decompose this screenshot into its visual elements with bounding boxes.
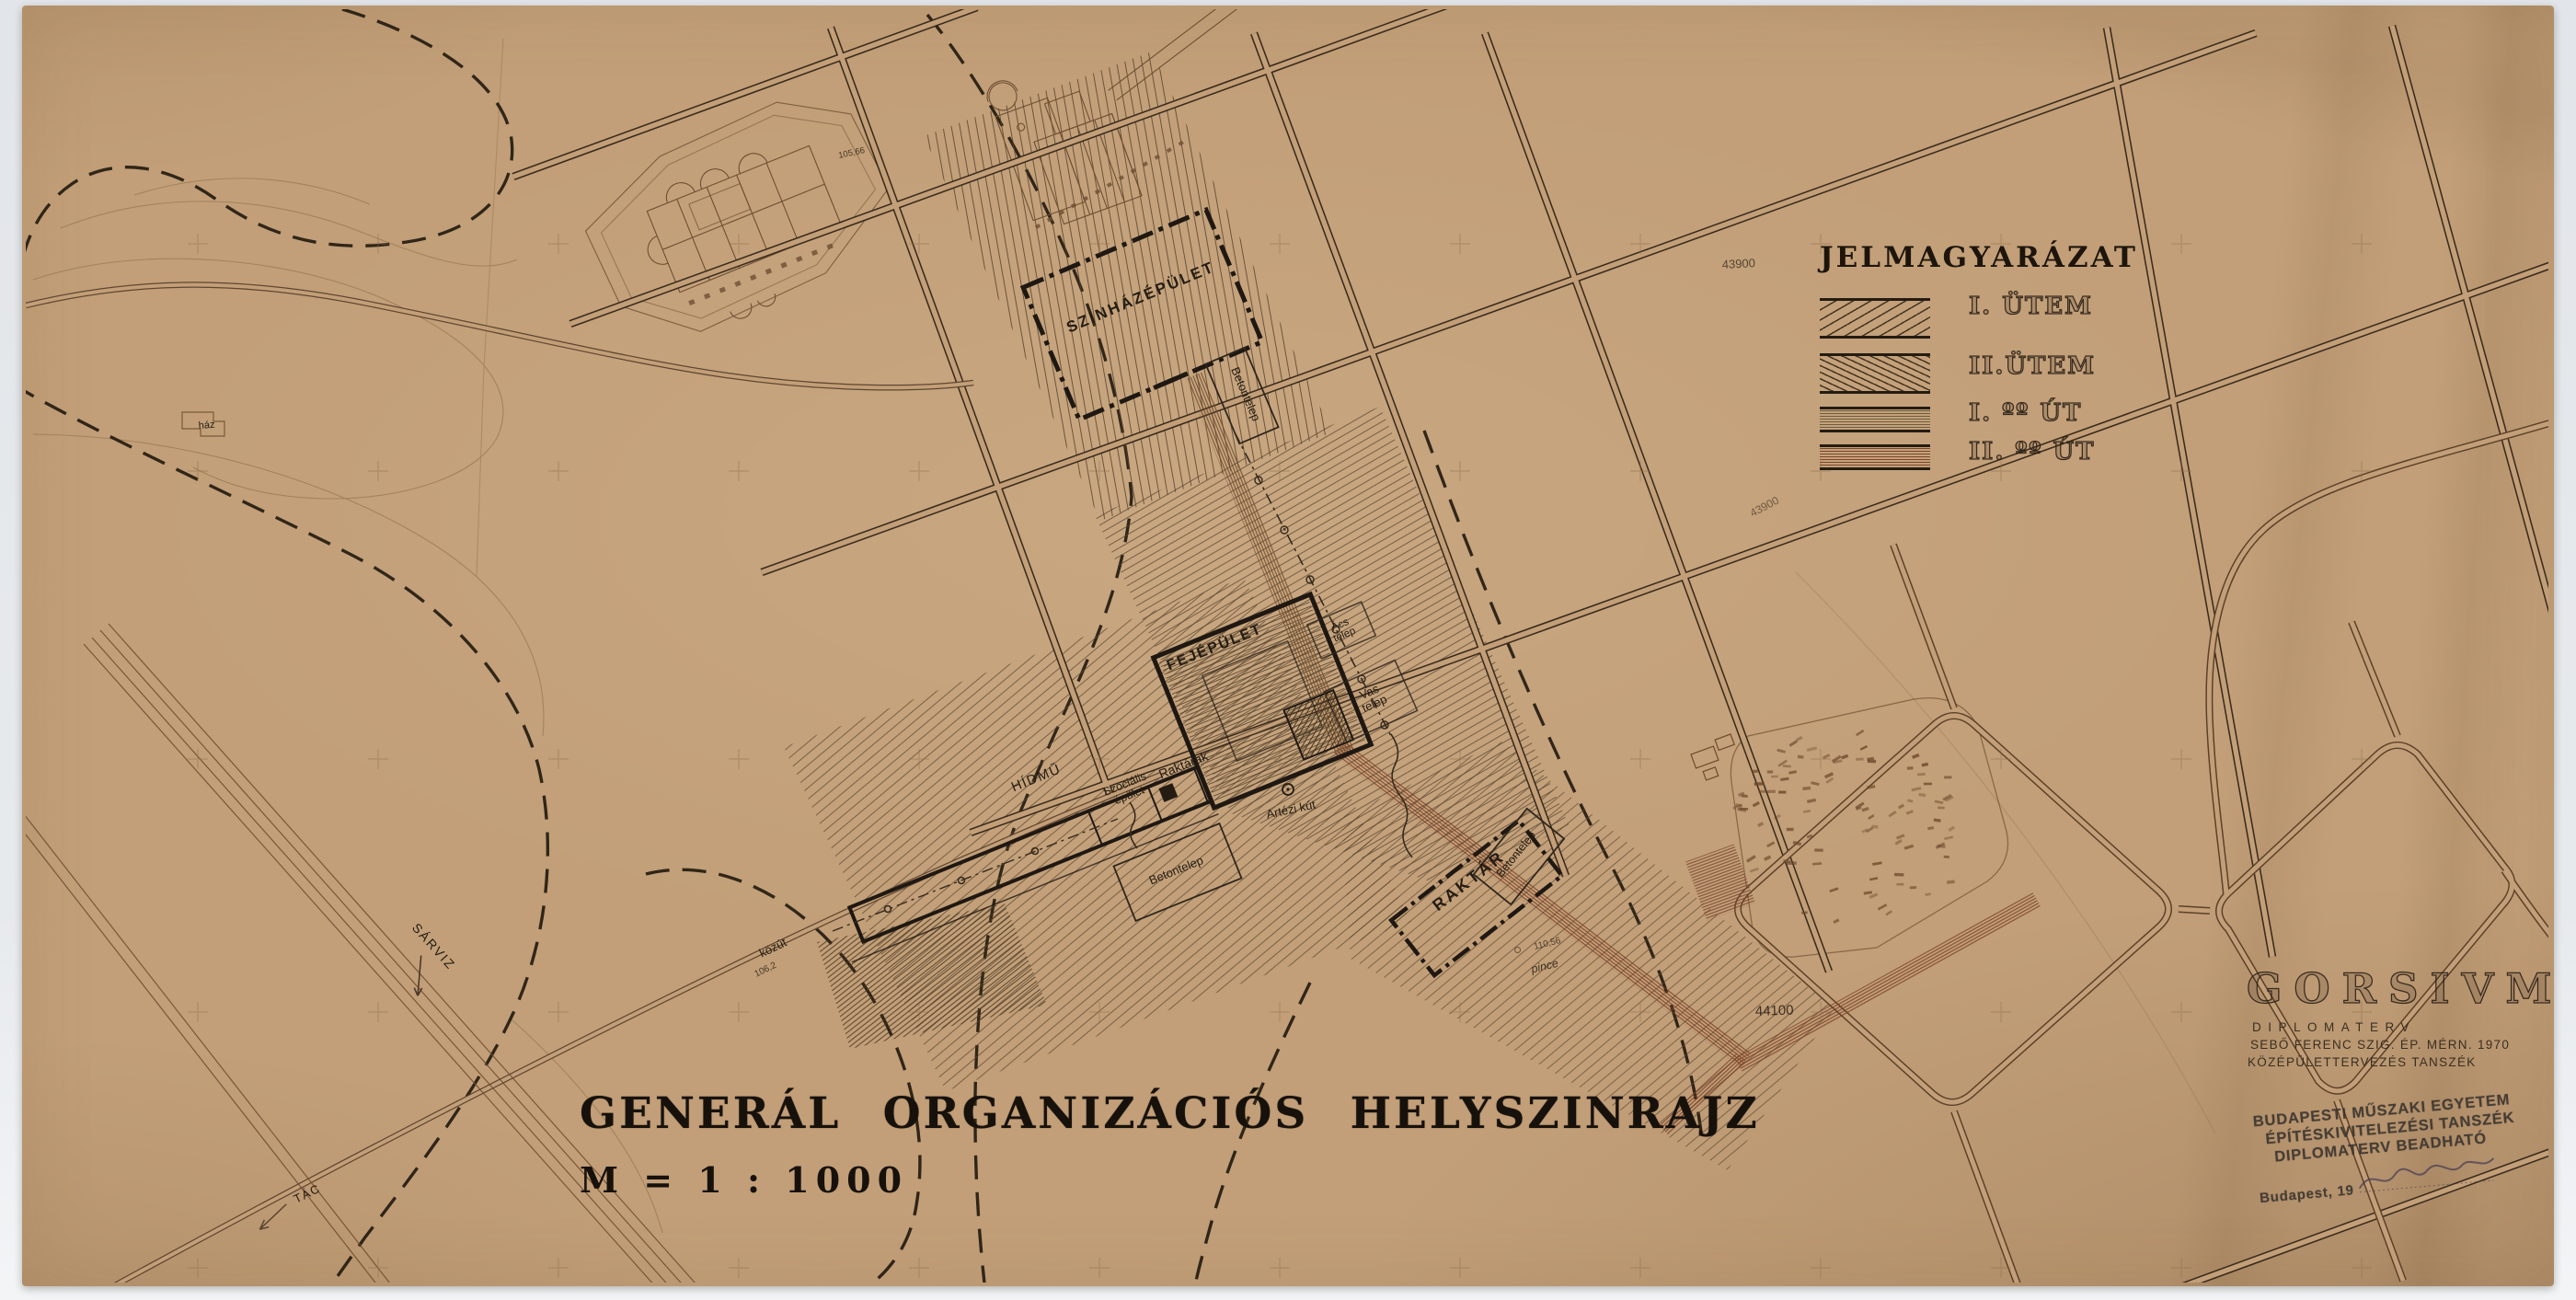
legend-swatch-phase1-hatch [1820,298,1930,339]
svg-text:SÁRVIZ: SÁRVIZ [409,920,459,972]
legend-item-road1: I. ºº ÚT [1820,394,2215,432]
legend-swatch-road2-stripes [1820,444,1930,470]
elevation-road: 106,2 [753,961,778,980]
legend-title: JELMAGYARÁZAT [1820,241,2215,274]
title-block: GENERÁL ORGANIZÁCIÓS HELYSZINRAJZ M = 1 … [580,1088,1760,1201]
legend-swatch-phase2-hatch [1820,353,1930,394]
ruins-fragments [1689,734,1742,782]
legend-item-phase2: II.ÜTEM [1820,339,2215,394]
pencil-note-1: 44100 [1755,1003,1794,1019]
legend-item-phase1: I. ÜTEM [1820,274,2215,339]
legend-item-label: I. ºº ÚT [1969,399,2082,427]
legend-swatch-road1-stripes [1820,407,1930,432]
label-house: ház [198,420,215,431]
project-block: GORSIVM DIPLOMATERV SEBŐ FERENC SZIG. ÉP… [2247,964,2563,1069]
pencil-note-2a: 43900 [1721,256,1755,271]
project-author: SEBŐ FERENC SZIG. ÉP. MÉRN. 1970 [2250,1038,2563,1052]
project-name: GORSIVM [2247,964,2563,1013]
legend: JELMAGYARÁZAT I. ÜTEM II.ÜTEM I. ºº ÚT I… [1820,241,2215,470]
legend-item-label: II.ÜTEM [1969,352,2096,380]
legend-item-label: I. ÜTEM [1969,293,2093,320]
pencil-note-2b: 43900 [1748,493,1781,519]
label-public-road: közút [757,935,789,960]
elevation-ruins: 105,66 [837,145,866,161]
rubble-field [1732,730,1955,924]
photo-of-drawing: { "legend": { "title": "JELMAGYARÁZAT", … [0,0,2576,1300]
plan-title: GENERÁL ORGANIZÁCIÓS HELYSZINRAJZ [580,1088,1760,1139]
project-department: KÖZÉPÜLETTERVEZÉS TANSZÉK [2248,1055,2563,1069]
project-type: DIPLOMATERV [2252,1020,2563,1034]
legend-item-road2: II. ºº ÚT [1820,432,2215,470]
plan-scale: M = 1 : 1000 [580,1159,1760,1201]
legend-item-label: II. ºº ÚT [1969,438,2096,466]
